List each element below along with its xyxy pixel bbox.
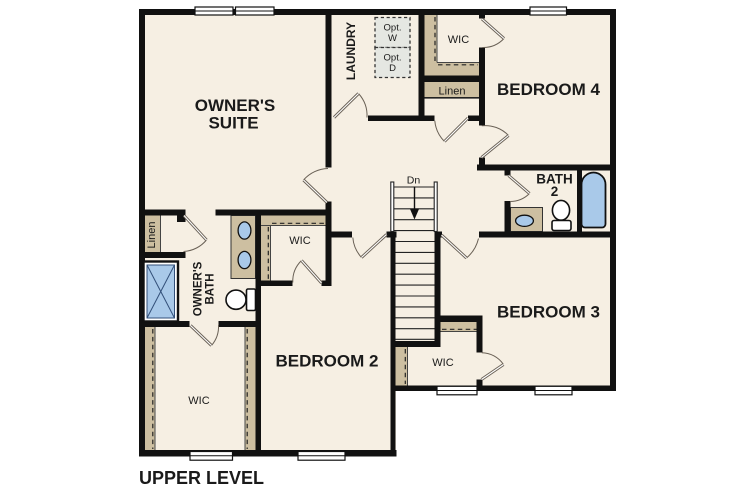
svg-text:OWNER'S: OWNER'S bbox=[193, 261, 205, 316]
svg-text:WIC: WIC bbox=[448, 34, 469, 46]
svg-text:WIC: WIC bbox=[188, 395, 209, 407]
svg-text:WIC: WIC bbox=[432, 357, 453, 369]
svg-text:BATH: BATH bbox=[205, 273, 217, 304]
svg-text:SUITE: SUITE bbox=[208, 114, 258, 133]
svg-text:Opt.: Opt. bbox=[384, 53, 402, 64]
svg-text:D: D bbox=[389, 63, 396, 74]
svg-text:LAUNDRY: LAUNDRY bbox=[344, 22, 358, 80]
svg-text:Opt.: Opt. bbox=[384, 23, 402, 34]
svg-text:BEDROOM 2: BEDROOM 2 bbox=[276, 352, 379, 371]
svg-text:Dn: Dn bbox=[407, 175, 421, 187]
svg-text:W: W bbox=[388, 33, 397, 44]
svg-text:UPPER LEVEL: UPPER LEVEL bbox=[139, 468, 264, 488]
svg-text:BEDROOM 3: BEDROOM 3 bbox=[497, 303, 600, 322]
svg-text:BEDROOM 4: BEDROOM 4 bbox=[497, 80, 601, 99]
svg-text:OWNER'S: OWNER'S bbox=[195, 96, 276, 115]
svg-text:Linen: Linen bbox=[146, 222, 158, 249]
svg-text:2: 2 bbox=[551, 184, 559, 199]
svg-text:Linen: Linen bbox=[439, 86, 466, 98]
svg-text:WIC: WIC bbox=[289, 235, 310, 247]
